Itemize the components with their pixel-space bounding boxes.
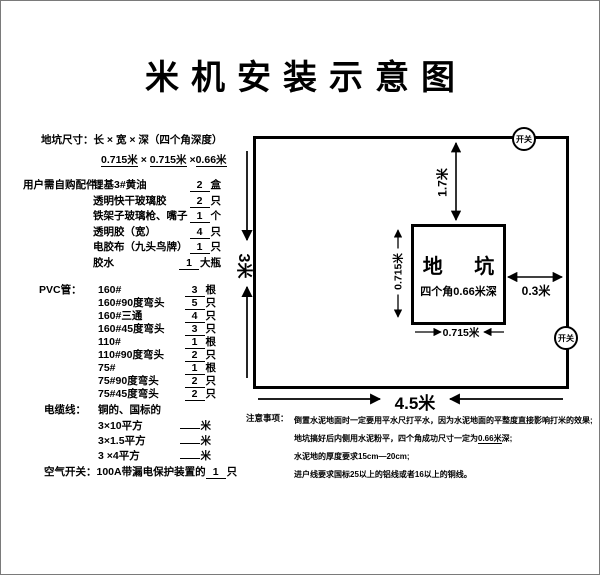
- pit-size-values: 0.715米 × 0.715米 ×0.66米: [101, 152, 227, 167]
- cable-row: 3×10平方 米: [98, 418, 211, 433]
- part-name: 透明胶（宽）: [93, 224, 156, 239]
- breaker-unit: 只: [227, 466, 238, 478]
- page-title: 米机安装示意图: [1, 50, 599, 99]
- parts-row: 电胶布（九头鸟牌） 1只: [93, 239, 221, 255]
- part-unit: 只: [211, 226, 222, 238]
- pvc-row: 160#45度弯头 3只: [98, 321, 216, 334]
- part-name: 锂基3#黄油: [93, 177, 147, 192]
- part-quantity: 1只: [190, 239, 222, 254]
- pvc-row: 75#90度弯头 2只: [98, 373, 216, 386]
- pvc-qty-value: 2: [185, 388, 205, 401]
- breaker-section: 空气开关：100A带漏电保护装置的1只: [44, 464, 237, 479]
- part-name: 电胶布（九头鸟牌）: [93, 239, 188, 254]
- note-line-2-post: 深;: [502, 434, 513, 443]
- pit-size-sep2: ×: [187, 154, 196, 166]
- part-qty-value: 1: [190, 210, 210, 223]
- pit-size-formula: 长 × 宽 × 深（四个角深度）: [94, 134, 223, 146]
- dim-label-3m: 3米: [234, 248, 258, 284]
- cable-unit: 米: [201, 420, 212, 432]
- cable-row: 3 ×4平方 米: [98, 448, 211, 463]
- pvc-name: 75#45度弯头: [98, 386, 159, 401]
- parts-row: 胶水 1大瓶: [93, 255, 221, 271]
- switch-right-label: 开关: [558, 333, 574, 344]
- pvc-row: 160# 3根: [98, 282, 216, 295]
- dim-label-pit-left: 0.715米: [391, 249, 406, 295]
- pvc-name: 160#45度弯头: [98, 321, 165, 336]
- cable-spec-note: 铜的、国标的: [98, 402, 161, 417]
- part-name: 透明快干玻璃胶: [93, 193, 167, 208]
- note-line-2-pre: 地坑搞好后内侧用水泥粉平，四个角成功尺寸一定为: [294, 434, 478, 443]
- part-qty-value: 1: [190, 241, 210, 254]
- part-qty-value: 2: [190, 179, 210, 192]
- pvc-list: 160# 3根 160#90度弯头 5只 160#三通 4只 160#45度弯头…: [98, 282, 216, 399]
- switch-top-label: 开关: [516, 134, 532, 145]
- cable-qty-value: [180, 428, 200, 429]
- pit-subtitle: 四个角0.66米深: [420, 283, 496, 299]
- cable-unit: 米: [201, 450, 212, 462]
- notes-label: 注意事项：: [246, 412, 289, 424]
- switch-icon-right: 开关: [554, 326, 578, 350]
- pvc-quantity: 2只: [185, 386, 217, 401]
- note-line-1: 倒置水泥地面时一定要用平水尺打平水，因为水泥地面的平整度直接影响打米的效果;: [294, 412, 593, 430]
- dim-label-4-5m: 4.5米: [385, 389, 445, 414]
- cable-quantity: 米: [180, 448, 212, 463]
- cable-name: 3×10平方: [98, 418, 143, 433]
- pvc-name: 110#90度弯头: [98, 347, 164, 362]
- note-line-4: 进户线要求国标25以上的铝线或者16以上的铜线。: [294, 466, 593, 484]
- notes-block: 倒置水泥地面时一定要用平水尺打平水，因为水泥地面的平整度直接影响打米的效果; 地…: [294, 412, 593, 484]
- cable-quantity: 米: [180, 433, 212, 448]
- part-quantity: 1个: [190, 208, 222, 223]
- pit-square: 地 坑 四个角0.66米深: [411, 224, 506, 325]
- part-name: 胶水: [93, 255, 114, 270]
- pit-size-sep1: ×: [138, 154, 150, 166]
- pit-title: 地 坑: [410, 250, 508, 279]
- parts-row: 透明胶（宽） 4只: [93, 224, 221, 240]
- part-qty-value: 4: [190, 226, 210, 239]
- pvc-row: 160#90度弯头 5只: [98, 295, 216, 308]
- part-qty-value: 2: [190, 195, 210, 208]
- pit-size-label: 地坑尺寸：: [41, 134, 94, 146]
- dim-label-0-3m: 0.3米: [511, 282, 561, 299]
- pvc-unit: 只: [206, 388, 217, 400]
- cable-name: 3 ×4平方: [98, 448, 140, 463]
- part-unit: 盒: [211, 179, 222, 191]
- cable-quantity: 米: [180, 418, 212, 433]
- note-line-2: 地坑搞好后内侧用水泥粉平，四个角成功尺寸一定为0.66米深;: [294, 430, 593, 448]
- part-quantity: 2盒: [190, 177, 222, 192]
- part-unit: 只: [211, 195, 222, 207]
- cable-section-label: 电缆线：: [44, 402, 86, 417]
- part-quantity: 1大瓶: [179, 255, 221, 270]
- parts-row: 铁架子玻璃枪、嘴子 1个: [93, 208, 221, 224]
- pit-size-length: 0.715米: [101, 154, 138, 167]
- pvc-section-label: PVC管：: [39, 282, 82, 297]
- pit-size-width: 0.715米: [150, 154, 187, 167]
- part-unit: 大瓶: [200, 257, 221, 269]
- parts-row: 锂基3#黄油 2盒: [93, 177, 221, 193]
- cable-row: 3×1.5平方 米: [98, 433, 211, 448]
- note-line-3: 水泥地的厚度要求15cm—20cm;: [294, 448, 593, 466]
- installation-diagram-sheet: 米机安装示意图 地坑尺寸：长 × 宽 × 深（四个角深度） 0.715米 × 0…: [0, 0, 600, 575]
- parts-row: 透明快干玻璃胶 2只: [93, 193, 221, 209]
- part-unit: 个: [211, 210, 222, 222]
- switch-icon-top: 开关: [512, 127, 536, 151]
- breaker-qty-value: 1: [206, 466, 226, 479]
- cable-qty-value: [180, 443, 200, 444]
- pvc-row: 110#90度弯头 2只: [98, 347, 216, 360]
- part-qty-value: 1: [179, 257, 199, 270]
- dim-label-1-7m: 1.7米: [434, 163, 451, 203]
- breaker-label: 空气开关：: [44, 466, 97, 478]
- cable-unit: 米: [201, 435, 212, 447]
- parts-list: 锂基3#黄油 2盒 透明快干玻璃胶 2只 铁架子玻璃枪、嘴子 1个 透明胶（宽）…: [93, 177, 221, 271]
- pit-size-section: 地坑尺寸：长 × 宽 × 深（四个角深度） 0.715米 × 0.715米 ×0…: [41, 132, 227, 167]
- dim-label-pit-bottom: 0.715米: [436, 325, 486, 340]
- cable-name: 3×1.5平方: [98, 433, 146, 448]
- part-name: 铁架子玻璃枪、嘴子: [93, 208, 188, 223]
- cable-list: 3×10平方 米 3×1.5平方 米 3 ×4平方 米: [98, 418, 211, 463]
- breaker-text: 100A带漏电保护装置的: [97, 466, 206, 478]
- pit-size-depth: 0.66米: [196, 154, 227, 167]
- note-line-2-depth: 0.66米: [478, 434, 502, 444]
- part-unit: 只: [211, 241, 222, 253]
- cable-qty-value: [180, 458, 200, 459]
- pvc-row: 75#45度弯头 2只: [98, 386, 216, 399]
- part-quantity: 4只: [190, 224, 222, 239]
- part-quantity: 2只: [190, 193, 222, 208]
